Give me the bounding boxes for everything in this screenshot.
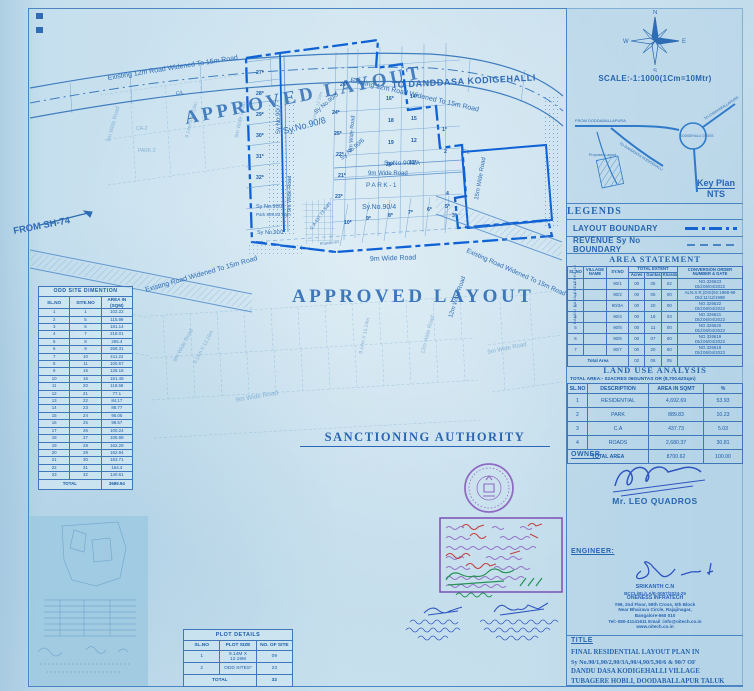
north-compass: N S W E xyxy=(567,10,743,72)
column-header: NO. OF SITE xyxy=(256,641,292,651)
legends-section: LEGENDS LAYOUT BOUNDARY REVENUE Sy No BO… xyxy=(567,204,743,252)
compass-n: N xyxy=(653,10,657,16)
title-text: FINAL RESIDENTIAL LAYOUT PLAN IN Sy No.9… xyxy=(571,648,739,686)
table-cell: 9 xyxy=(70,346,101,353)
title-line: DANDU DASA KODIGEHALLI VILLAGE xyxy=(571,667,739,677)
table-cell: 98.57 xyxy=(101,420,132,427)
plot-number: 23* xyxy=(335,194,344,200)
table-cell: 00 xyxy=(629,278,645,289)
survey-label: Sy No.90/2 xyxy=(256,204,283,210)
table-cell: 10 xyxy=(39,375,70,382)
plot-details-table: PLOT DETAILS SL.NO PLOT SIZE NO. OF SITE… xyxy=(183,629,293,687)
plot-number: 21* xyxy=(338,173,347,179)
plot-number: 19 xyxy=(388,140,394,146)
column-header: Kharab xyxy=(661,272,677,278)
plot-number: 31* xyxy=(256,154,265,160)
table-row: 69268.31 xyxy=(39,346,133,353)
table-cell: 411.22 xyxy=(101,353,132,360)
plot-number: 1* xyxy=(442,127,448,133)
table-cell: NO.326623 Dtd:06/04/2022 xyxy=(678,278,743,289)
revenue-boundary-line-sample xyxy=(687,244,737,246)
table-cell: 8 xyxy=(70,338,101,345)
table-row: 2PARK889.8310.23 xyxy=(568,408,743,422)
table-cell: ALN.S.R.(DIS)92:1998-99 Dtd:11/12/1998 xyxy=(678,289,743,300)
table-cell: 118.58 xyxy=(101,383,132,390)
proposed-layout-mark xyxy=(596,156,623,188)
survey-label: Sy No.90/1 xyxy=(257,230,284,236)
table-cell: 100.57 xyxy=(101,361,132,368)
odd-table-title: ODD SITE DIMENTION xyxy=(39,287,133,297)
table-cell: 23 xyxy=(256,663,292,675)
table-cell: NO.326620 Dtd:06/04/2022 xyxy=(678,322,743,333)
table-cell: 00 xyxy=(629,289,645,300)
table-cell: 4 xyxy=(39,331,70,338)
table-cell: 6 xyxy=(39,346,70,353)
plot-number: 15 xyxy=(411,116,417,122)
table-cell: 84.17 xyxy=(101,398,132,405)
plot-number: 16* xyxy=(386,96,395,102)
table-cell: 22 xyxy=(70,398,101,405)
owner-section: OWNER Mr. LEO QUADROS xyxy=(567,448,743,545)
table-cell: 3 xyxy=(568,422,588,436)
table-cell: 90/7 xyxy=(607,344,629,355)
table-row: 1928162.29 xyxy=(39,442,133,449)
road-label: 9m Wide Road xyxy=(287,176,293,212)
table-cell: 00 xyxy=(661,344,677,355)
table-row: 2ODD SITES*23 xyxy=(184,663,293,675)
title-line: FINAL RESIDENTIAL LAYOUT PLAN IN xyxy=(571,648,739,658)
table-row: 790/7002000NO.326618 Dtd:06/04/2022 xyxy=(568,344,743,355)
plot-number: 10* xyxy=(344,220,353,226)
kharab-label: Kharab-3G xyxy=(320,239,340,246)
title-block-section: TITLE FINAL RESIDENTIAL LAYOUT PLAN IN S… xyxy=(567,636,743,686)
table-cell: 18 xyxy=(39,435,70,442)
scale-text: SCALE:-1:1000(1Cm=10Mtr) xyxy=(567,74,743,83)
table-row: 1827105.98 xyxy=(39,435,133,442)
engineer-details: SRIKANTH C.N BCCL/BL/LA/E-0057/2024-25 O… xyxy=(567,585,743,630)
table-cell: 10.23 xyxy=(704,408,743,422)
table-row: 2332140.61 xyxy=(39,472,133,479)
table-cell: 100.24 xyxy=(101,427,132,434)
table-cell: 20 xyxy=(645,344,661,355)
park2-label: PARK-2 xyxy=(138,148,156,154)
engineer-line: www.oitech.co.in xyxy=(567,624,743,630)
table-row: 1120118.58 xyxy=(39,383,133,390)
column-header: SY.NO xyxy=(607,267,629,279)
column-header: AREA IN SQMT xyxy=(649,384,704,394)
table-cell: 1 xyxy=(184,651,220,663)
table-cell: 24 xyxy=(70,412,101,419)
inset-blueprint xyxy=(30,516,148,686)
table-row: 1726100.24 xyxy=(39,427,133,434)
table-row: 2130163.71 xyxy=(39,457,133,464)
table-cell: 14 xyxy=(39,405,70,412)
keyplan-title: Key Plan xyxy=(697,178,735,189)
plot-number: 11* xyxy=(409,160,417,166)
table-row: 19.14M X 12.19M09 xyxy=(184,651,293,663)
table-cell xyxy=(584,311,607,322)
table-cell: 162.29 xyxy=(101,442,132,449)
table-cell: 265.4 xyxy=(101,338,132,345)
plot-number: 29* xyxy=(256,112,265,118)
table-row: 811100.57 xyxy=(39,361,133,368)
table-row: 132284.17 xyxy=(39,398,133,405)
plot-number: 2 xyxy=(444,149,447,155)
plot-number: 20* xyxy=(386,162,395,168)
table-cell: 95.05 xyxy=(101,412,132,419)
table-row: 1016151.48 xyxy=(39,375,133,382)
table-cell: 1 xyxy=(70,309,101,316)
table-cell: 09 xyxy=(256,651,292,663)
table-row: 490/4001803NO.326621 Dtd:06/04/2022 xyxy=(568,311,743,322)
table-cell: NO.326622 Dtd:06/04/2022 xyxy=(678,300,743,311)
village-name-vertical: DANDU DASA KODIGEHALLI xyxy=(573,254,577,324)
plot-number: 18 xyxy=(388,118,394,124)
park-label: PARK-1 xyxy=(366,182,398,189)
table-cell: 25 xyxy=(70,420,101,427)
keyplan-label: FROM DODDABALLAPURA xyxy=(575,118,626,123)
table-cell: 2 xyxy=(39,316,70,323)
survey-label: Sy.No.90/4 xyxy=(362,204,396,211)
table-cell: 5.03 xyxy=(704,422,743,436)
plot-number: 12 xyxy=(411,138,417,144)
table-row: 36181.14 xyxy=(39,324,133,331)
table-row: 915128.18 xyxy=(39,368,133,375)
table-cell: 5 xyxy=(39,338,70,345)
table-cell xyxy=(584,344,607,355)
dim-label: 9.14m X 12.19m xyxy=(192,330,215,365)
table-cell: 102.22 xyxy=(101,309,132,316)
total-label: TOTAL xyxy=(39,479,102,489)
total-value: 3689.94 xyxy=(101,479,132,489)
table-cell: 07 xyxy=(645,333,661,344)
keyplan-label: KODIGEHALLI CROSS xyxy=(680,134,713,138)
official-signature-right xyxy=(480,603,558,640)
approver-signature-green xyxy=(446,569,542,597)
odd-site-dimension-table: ODD SITE DIMENTION SL.NO SITE.NO AREA IN… xyxy=(38,286,133,490)
table-row: 2231164.4 xyxy=(39,464,133,471)
table-row: 690/6000700NO.326619 Dtd:06/04/2022 xyxy=(568,333,743,344)
column-header: SL.NO xyxy=(184,641,220,651)
area-statement-title: AREA STATEMENT xyxy=(567,252,743,266)
table-cell: 268.31 xyxy=(101,346,132,353)
column-header: % xyxy=(704,384,743,394)
plot-number: 4 xyxy=(446,191,449,197)
table-cell: 11 xyxy=(645,322,661,333)
table-cell: RESIDENTIAL xyxy=(588,394,649,408)
table-row: 2029162.94 xyxy=(39,449,133,456)
table-cell: 77.1 xyxy=(101,390,132,397)
table-row: 47218.01 xyxy=(39,331,133,338)
column-header: AREA IN (SQM) xyxy=(101,297,132,309)
plot-number: 7* xyxy=(408,210,414,216)
title-line: Sy No.90/1,90/2,90/3A,90/4,90/5,90/6 & 9… xyxy=(571,658,739,668)
table-cell: 11 xyxy=(70,361,101,368)
blueprint-sheet: Existing 12m Road Widened To 15m Road C/… xyxy=(0,0,754,691)
table-cell: 26 xyxy=(70,427,101,434)
table-cell xyxy=(584,289,607,300)
table-cell xyxy=(584,278,607,289)
title-line: TUBAGERE HOBLI, DOODABALLAPUR TALUK xyxy=(571,677,739,687)
sanctioning-authority-title: SANCTIONING AUTHORITY xyxy=(300,430,550,447)
layout-boundary-line-sample xyxy=(685,227,737,230)
column-header: SITE.NO xyxy=(70,297,101,309)
title-label: TITLE xyxy=(571,637,593,644)
table-cell: 12 xyxy=(39,390,70,397)
table-cell: 3 xyxy=(39,324,70,331)
table-cell: 88.77 xyxy=(101,405,132,412)
table-row: 142388.77 xyxy=(39,405,133,412)
table-cell: 00 xyxy=(629,311,645,322)
table-cell: 8 xyxy=(39,361,70,368)
column-header: DESCRIPTION xyxy=(588,384,649,394)
table-cell: 105.98 xyxy=(101,435,132,442)
road-label: 9m Wide Road xyxy=(370,254,417,263)
keyplan-section: FROM DODDABALLAPURA KODIGEHALLI CROSS TO… xyxy=(567,92,743,204)
table-row: 122177.1 xyxy=(39,390,133,397)
table-cell: 140.61 xyxy=(101,472,132,479)
table-cell: 23 xyxy=(39,472,70,479)
table-cell: 10 xyxy=(70,353,101,360)
plot-number: 27* xyxy=(256,70,265,76)
table-cell: 16 xyxy=(70,375,101,382)
table-cell: 29 xyxy=(70,449,101,456)
total-value: 32 xyxy=(256,675,292,687)
road-label: 9m Wide Road xyxy=(368,171,408,177)
table-cell: 00 xyxy=(661,289,677,300)
ca2-label: CA-2 xyxy=(136,126,148,132)
table-cell: 00 xyxy=(661,322,677,333)
table-cell: 9.14M X 12.19M xyxy=(220,651,256,663)
table-cell: 2 xyxy=(568,408,588,422)
table-cell: NO.326618 Dtd:06/04/2022 xyxy=(678,344,743,355)
table-cell: 1 xyxy=(39,309,70,316)
table-cell: NO.326621 Dtd:06/04/2022 xyxy=(678,311,743,322)
table-cell: 90/2 xyxy=(607,289,629,300)
table-cell: 05 xyxy=(645,289,661,300)
column-header: SL.NO xyxy=(568,384,588,394)
table-cell: 00 xyxy=(629,344,645,355)
table-cell: 02 xyxy=(661,278,677,289)
plot-number: 24* xyxy=(332,110,341,116)
table-cell: 18 xyxy=(645,311,661,322)
engineer-section: ENGINEER: SRIKANTH C.N BCCL/BL/LA/E-0057… xyxy=(567,545,743,636)
table-row: 390/3A002000NO.326622 Dtd:06/04/2022 xyxy=(568,300,743,311)
table-cell: 163.71 xyxy=(101,457,132,464)
table-cell: 7 xyxy=(39,353,70,360)
table-cell: 23 xyxy=(70,405,101,412)
table-cell: 9 xyxy=(39,368,70,375)
table-row: 590/5001100NO.326620 Dtd:06/04/2022 xyxy=(568,322,743,333)
table-cell: 22 xyxy=(39,464,70,471)
road-label: 9m Wide Road xyxy=(235,390,279,404)
table-row: 25115.99 xyxy=(39,316,133,323)
table-cell: 7 xyxy=(568,344,584,355)
table-cell: 90/3A xyxy=(607,300,629,311)
table-cell: 00 xyxy=(629,333,645,344)
official-signature-left xyxy=(406,607,462,640)
table-cell: 90/1 xyxy=(607,278,629,289)
plot-number: 28* xyxy=(256,91,265,97)
table-cell: C.A xyxy=(588,422,649,436)
table-cell: 17 xyxy=(39,427,70,434)
table-cell: 31 xyxy=(70,464,101,471)
compass-s: S xyxy=(653,69,657,72)
table-row: 152495.05 xyxy=(39,412,133,419)
table-cell: 15 xyxy=(39,412,70,419)
plot-number: 22* xyxy=(336,152,345,158)
road-label: 12m Wide Road xyxy=(420,315,436,355)
column-header: SL.NO xyxy=(39,297,70,309)
table-row: 290/2000500ALN.S.R.(DIS)92:1998-99 Dtd:1… xyxy=(568,289,743,300)
keyplan-label: TO DANDDASA KODIGEHALLI xyxy=(618,141,663,171)
table-row: 1RESIDENTIAL4,692.6953.93 xyxy=(568,394,743,408)
table-row: 710411.22 xyxy=(39,353,133,360)
table-cell: 00 xyxy=(629,300,645,311)
engineer-signature xyxy=(567,555,743,585)
table-row: 11102.22 xyxy=(39,309,133,316)
engineer-label: ENGINEER: xyxy=(571,548,614,555)
table-cell: 164.4 xyxy=(101,464,132,471)
land-use-title: LAND USE ANALYSIS xyxy=(567,364,743,376)
table-cell: 05 xyxy=(645,278,661,289)
keyplan-label: TO CHIKKABALLAPURA xyxy=(703,95,740,121)
approved-layout-label: APPROVED LAYOUT xyxy=(292,286,534,307)
column-header: Acres xyxy=(629,272,645,278)
keyplan-label: Proposed Layout xyxy=(589,153,616,157)
table-cell: 20 xyxy=(645,300,661,311)
table-cell: 15 xyxy=(70,368,101,375)
table-cell: 00 xyxy=(661,300,677,311)
table-cell: 53.93 xyxy=(704,394,743,408)
table-cell: 03 xyxy=(661,311,677,322)
table-cell: 21 xyxy=(70,390,101,397)
table-cell: 4,692.69 xyxy=(649,394,704,408)
from-sh74-label: FROM SH-74 xyxy=(12,215,71,237)
total-label: TOTAL xyxy=(184,675,257,687)
plot-number: 32* xyxy=(256,175,265,181)
compass-section: N S W E SCALE:-1:1000(1Cm=10Mtr) xyxy=(567,8,743,92)
area-statement-section: AREA STATEMENT SL.NO VILLAGE NAME SY.NO … xyxy=(567,252,743,364)
land-use-section: LAND USE ANALYSIS TOTAL AREA:- 02ACRES 0… xyxy=(567,364,743,448)
table-cell: 162.94 xyxy=(101,449,132,456)
column-header: VILLAGE NAME xyxy=(584,267,607,279)
table-cell: 00 xyxy=(629,322,645,333)
survey-label: Sy No.90/7 xyxy=(276,104,282,134)
table-row: 190/1000502NO.326623 Dtd:06/04/2022 xyxy=(568,278,743,289)
plot-number: 6* xyxy=(427,207,433,213)
dim-label: 9.14m X 15.24m xyxy=(358,317,371,354)
table-cell: 115.99 xyxy=(101,316,132,323)
plot-number: 25* xyxy=(334,131,343,137)
table-cell: 7 xyxy=(70,331,101,338)
compass-w: W xyxy=(623,39,629,45)
table-row: 3C.A437.735.03 xyxy=(568,422,743,436)
table-cell: 28 xyxy=(70,442,101,449)
table-cell: 90/4 xyxy=(607,311,629,322)
legend-item-layout-boundary: LAYOUT BOUNDARY xyxy=(567,220,743,237)
table-cell: 6 xyxy=(70,324,101,331)
right-panel: N S W E SCALE:-1:1000(1Cm=10Mtr) xyxy=(566,8,743,686)
table-cell: 21 xyxy=(39,457,70,464)
centerline-label: C/L xyxy=(175,90,184,97)
legends-title: LEGENDS xyxy=(567,204,743,220)
owner-name: Mr. LEO QUADROS xyxy=(567,496,743,506)
table-cell: 5 xyxy=(70,316,101,323)
table-cell: NO.326619 Dtd:06/04/2022 xyxy=(678,333,743,344)
table-row: 162598.57 xyxy=(39,420,133,427)
table-cell xyxy=(584,322,607,333)
table-cell xyxy=(584,300,607,311)
table-row: 58265.4 xyxy=(39,338,133,345)
column-header: CONVERSION ORDER NUMBER & DATE xyxy=(678,267,743,279)
plot-number: 30* xyxy=(256,133,265,139)
plot-number: 14* xyxy=(410,94,419,100)
column-header: Guntas xyxy=(645,272,661,278)
table-cell: 20 xyxy=(39,449,70,456)
table-cell: 437.73 xyxy=(649,422,704,436)
table-cell: 13 xyxy=(39,398,70,405)
table-cell: 19 xyxy=(39,442,70,449)
plot-number: 9* xyxy=(366,216,372,222)
land-use-subtitle: TOTAL AREA:- 02ACRES 06GUNTAS OR (8,700.… xyxy=(567,376,743,383)
round-seal xyxy=(465,464,513,512)
plot-table-title: PLOT DETAILS xyxy=(184,630,293,641)
table-cell xyxy=(584,333,607,344)
table-cell: 1 xyxy=(568,394,588,408)
road-label: 9m Wide Road xyxy=(487,342,527,356)
table-cell: 90/6 xyxy=(607,333,629,344)
table-cell: 20 xyxy=(70,383,101,390)
table-cell: 32 xyxy=(70,472,101,479)
table-cell: 181.14 xyxy=(101,324,132,331)
plot-number: 26* xyxy=(340,82,349,88)
table-cell: ODD SITES* xyxy=(220,663,256,675)
table-cell: 27 xyxy=(70,435,101,442)
table-cell: 6 xyxy=(568,333,584,344)
legend-label: LAYOUT BOUNDARY xyxy=(573,224,658,233)
keyplan-nts: NTS xyxy=(707,189,725,199)
table-cell: 128.18 xyxy=(101,368,132,375)
table-cell: PARK xyxy=(588,408,649,422)
table-cell: 30 xyxy=(70,457,101,464)
table-cell: 889.83 xyxy=(649,408,704,422)
table-cell: 00 xyxy=(661,333,677,344)
table-cell: 90/5 xyxy=(607,322,629,333)
table-cell: 218.01 xyxy=(101,331,132,338)
table-cell: 2 xyxy=(184,663,220,675)
column-header: PLOT SIZE xyxy=(220,641,256,651)
road-label: 15m Wide Road xyxy=(474,157,487,200)
table-cell: 11 xyxy=(39,383,70,390)
road-label: 9m Wide Road xyxy=(106,106,121,143)
keyplan-caption: Key Plan NTS xyxy=(697,178,735,199)
table-cell: 151.48 xyxy=(101,375,132,382)
table-cell: 16 xyxy=(39,420,70,427)
compass-e: E xyxy=(682,39,686,45)
park-area-label: Park 889.83 Sqm xyxy=(256,212,291,217)
